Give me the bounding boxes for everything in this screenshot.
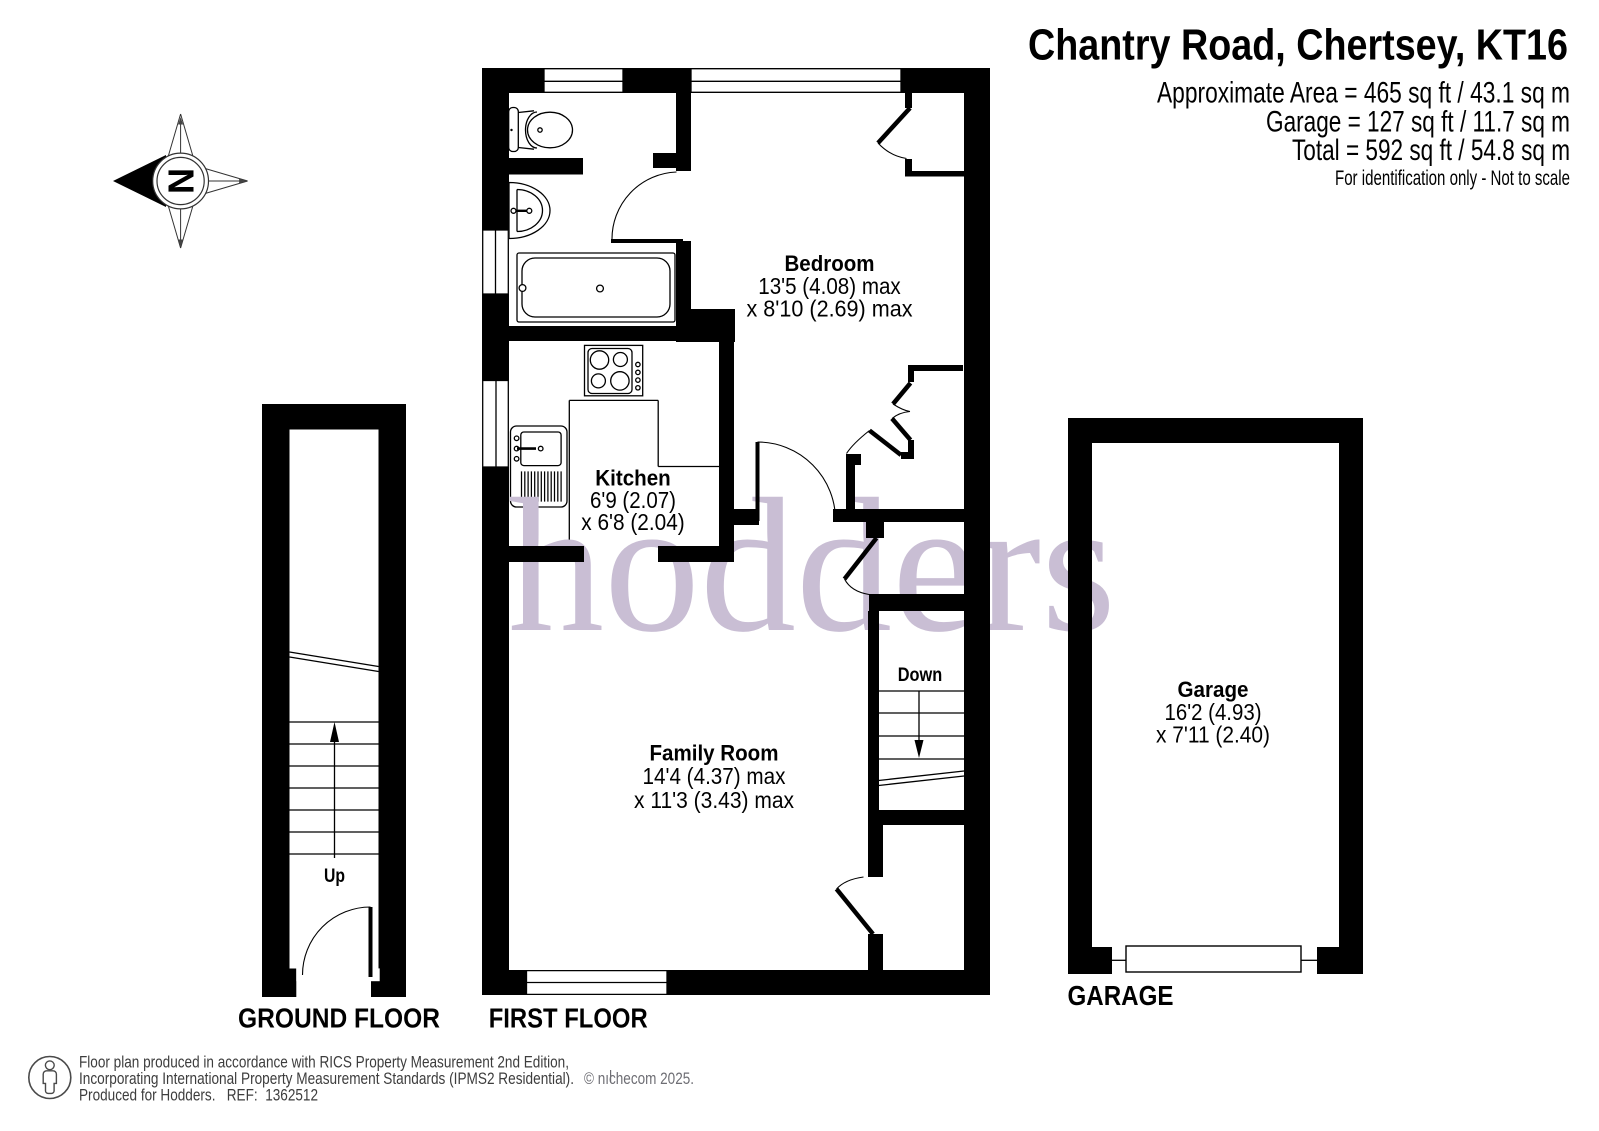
svg-text:Total = 592 sq ft / 54.8 sq m: Total = 592 sq ft / 54.8 sq m bbox=[1292, 134, 1570, 167]
svg-text:GARAGE: GARAGE bbox=[1068, 980, 1174, 1011]
svg-text:x 6'8 (2.04): x 6'8 (2.04) bbox=[581, 509, 685, 535]
svg-text:FIRST FLOOR: FIRST FLOOR bbox=[489, 1003, 648, 1034]
svg-text:Down: Down bbox=[898, 665, 943, 686]
svg-text:For identification only - Not: For identification only - Not to scale bbox=[1335, 167, 1570, 190]
svg-text:Up: Up bbox=[324, 866, 345, 887]
svg-text:14'4 (4.37) max: 14'4 (4.37) max bbox=[643, 763, 786, 789]
svg-text:x 7'11 (2.40): x 7'11 (2.40) bbox=[1156, 721, 1270, 747]
svg-text:x 8'10 (2.69) max: x 8'10 (2.69) max bbox=[747, 295, 913, 321]
svg-text:© nıchecom 2025.: © nıchecom 2025. bbox=[584, 1069, 694, 1088]
svg-text:Produced for Hodders. REF:: Produced for Hodders. REF: 1362512 bbox=[79, 1086, 318, 1105]
svg-text:Chantry Road, Chertsey, KT16: Chantry Road, Chertsey, KT16 bbox=[1028, 21, 1568, 70]
svg-text:GROUND FLOOR: GROUND FLOOR bbox=[238, 1003, 440, 1034]
svg-text:x 11'3 (3.43) max: x 11'3 (3.43) max bbox=[634, 787, 794, 813]
svg-text:N: N bbox=[160, 168, 201, 194]
svg-text:Family Room: Family Room bbox=[650, 741, 779, 766]
